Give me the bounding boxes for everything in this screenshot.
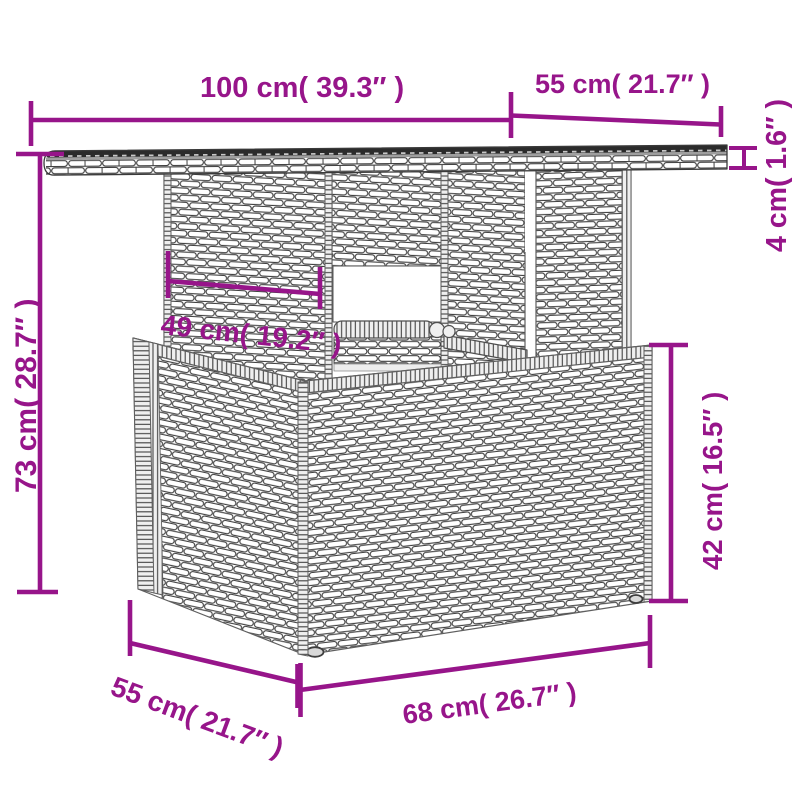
svg-text:55 cm( 21.7″ ): 55 cm( 21.7″ ) (535, 69, 710, 99)
svg-text:42 cm( 16.5″ ): 42 cm( 16.5″ ) (697, 392, 728, 570)
svg-text:4 cm( 1.6″ ): 4 cm( 1.6″ ) (761, 99, 793, 252)
svg-text:100 cm( 39.3″ ): 100 cm( 39.3″ ) (200, 72, 404, 104)
svg-text:73 cm( 28.7″ ): 73 cm( 28.7″ ) (10, 299, 43, 493)
